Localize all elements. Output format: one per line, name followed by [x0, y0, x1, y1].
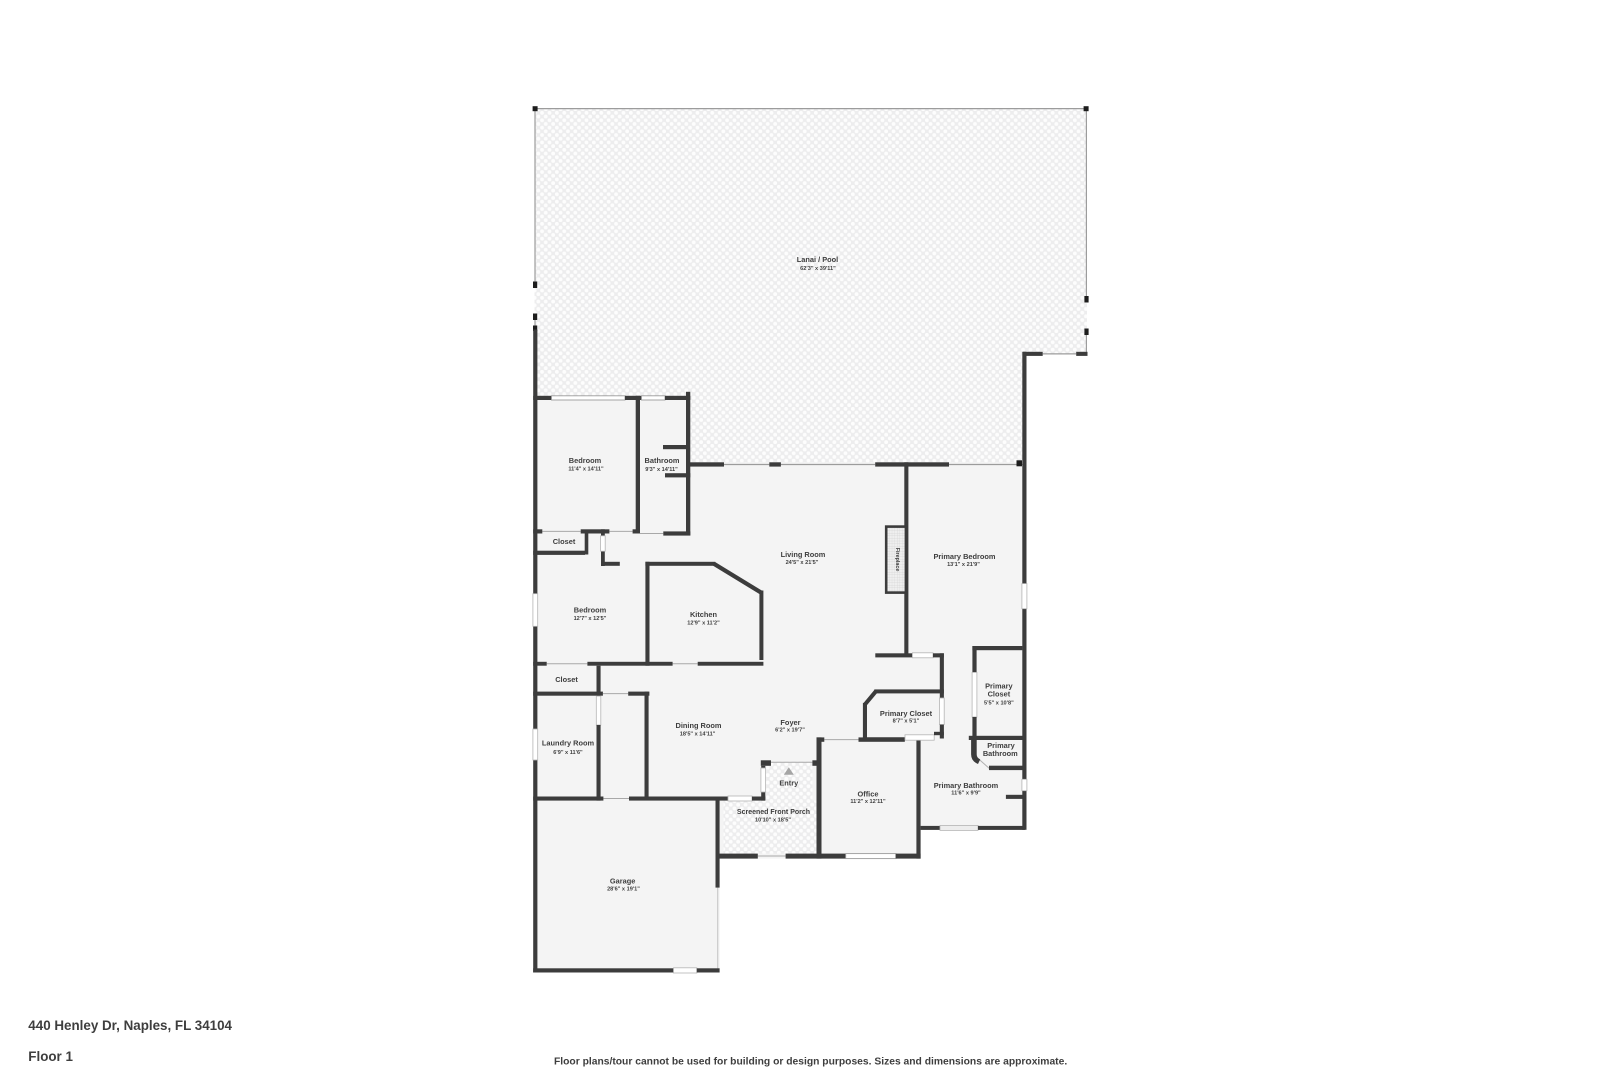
- svg-text:Entry: Entry: [779, 778, 799, 787]
- svg-text:11'4" x 14'11": 11'4" x 14'11": [568, 467, 604, 473]
- svg-text:Screened Front Porch: Screened Front Porch: [737, 809, 810, 816]
- svg-text:28'6" x 19'1": 28'6" x 19'1": [607, 887, 640, 893]
- svg-text:11'6" x 9'9": 11'6" x 9'9": [951, 790, 981, 796]
- svg-text:Lanai / Pool: Lanai / Pool: [797, 255, 838, 264]
- svg-text:Closet: Closet: [555, 675, 578, 684]
- svg-text:Laundry Room: Laundry Room: [542, 739, 595, 748]
- svg-text:13'1" x 21'9": 13'1" x 21'9": [947, 562, 980, 568]
- svg-text:11'2" x 12'11": 11'2" x 12'11": [850, 799, 886, 805]
- svg-text:Living Room: Living Room: [781, 550, 826, 559]
- svg-text:Garage: Garage: [610, 876, 635, 885]
- svg-text:Closet: Closet: [553, 537, 576, 546]
- svg-text:6'9" x 11'6": 6'9" x 11'6": [553, 750, 583, 756]
- svg-text:Bedroom: Bedroom: [569, 456, 602, 465]
- svg-text:24'5" x 21'5": 24'5" x 21'5": [786, 560, 819, 566]
- svg-text:6'2" x 19'7": 6'2" x 19'7": [775, 728, 805, 734]
- svg-text:10'10" x 18'5": 10'10" x 18'5": [755, 818, 791, 824]
- svg-text:Office: Office: [858, 789, 879, 798]
- svg-text:Floor plans/tour cannot be use: Floor plans/tour cannot be used for buil…: [554, 1056, 1067, 1067]
- svg-text:Bedroom: Bedroom: [574, 606, 607, 615]
- svg-text:440 Henley Dr, Naples, FL 3410: 440 Henley Dr, Naples, FL 34104: [28, 1018, 232, 1033]
- svg-text:Primary Bathroom: Primary Bathroom: [934, 781, 999, 790]
- svg-text:62'3" x 39'11": 62'3" x 39'11": [800, 266, 836, 272]
- svg-text:8'7" x 5'1": 8'7" x 5'1": [893, 719, 920, 725]
- svg-text:12'7" x 12'5": 12'7" x 12'5": [574, 616, 607, 622]
- svg-text:9'3" x 14'11": 9'3" x 14'11": [645, 467, 678, 473]
- svg-text:Dining Room: Dining Room: [676, 721, 722, 730]
- svg-text:Primary Closet: Primary Closet: [880, 709, 933, 718]
- svg-text:Kitchen: Kitchen: [690, 610, 718, 619]
- svg-text:Primary Bedroom: Primary Bedroom: [933, 552, 995, 561]
- svg-text:12'9" x 11'2": 12'9" x 11'2": [687, 621, 720, 627]
- svg-text:5'5" x 10'8": 5'5" x 10'8": [984, 701, 1014, 707]
- svg-text:Closet: Closet: [988, 690, 1011, 699]
- svg-text:Floor 1: Floor 1: [28, 1049, 73, 1064]
- svg-text:18'5" x 14'11": 18'5" x 14'11": [680, 732, 716, 738]
- svg-text:Bathroom: Bathroom: [983, 749, 1018, 758]
- svg-text:Foyer: Foyer: [780, 718, 800, 727]
- svg-text:Bathroom: Bathroom: [645, 456, 680, 465]
- svg-text:Fireplace: Fireplace: [894, 548, 900, 572]
